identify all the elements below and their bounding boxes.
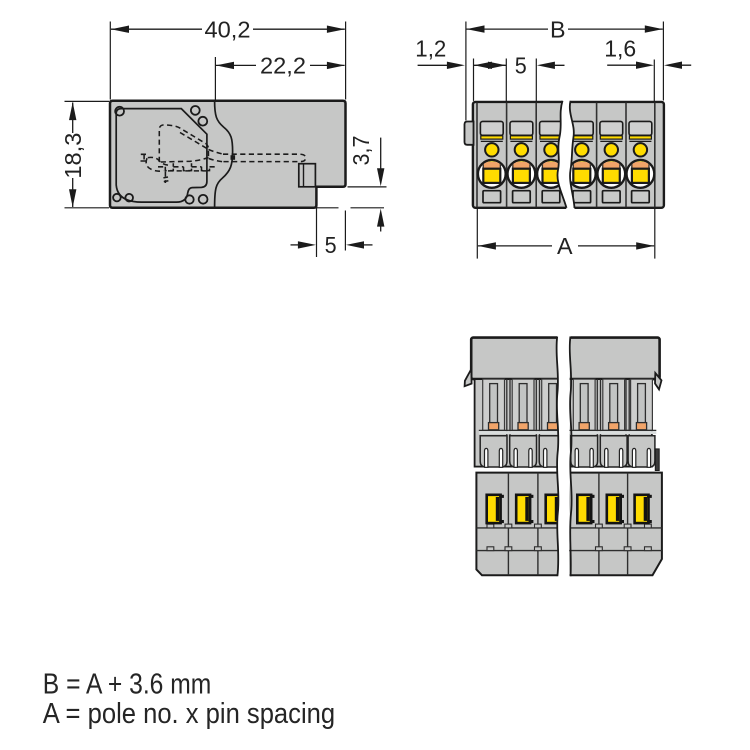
svg-text:40,2: 40,2 (205, 17, 251, 43)
svg-text:B = A + 3.6 mm: B = A + 3.6 mm (43, 668, 212, 700)
svg-text:1,6: 1,6 (604, 36, 636, 62)
svg-text:B: B (550, 16, 566, 42)
svg-text:A = pole no. x pin spacing: A = pole no. x pin spacing (43, 698, 335, 730)
svg-text:A: A (557, 233, 573, 259)
svg-text:3,7: 3,7 (348, 136, 374, 166)
svg-text:22,2: 22,2 (260, 53, 306, 79)
svg-text:5: 5 (325, 232, 337, 258)
svg-text:5: 5 (515, 52, 527, 78)
svg-text:18,3: 18,3 (60, 133, 86, 179)
svg-text:1,2: 1,2 (415, 36, 446, 62)
